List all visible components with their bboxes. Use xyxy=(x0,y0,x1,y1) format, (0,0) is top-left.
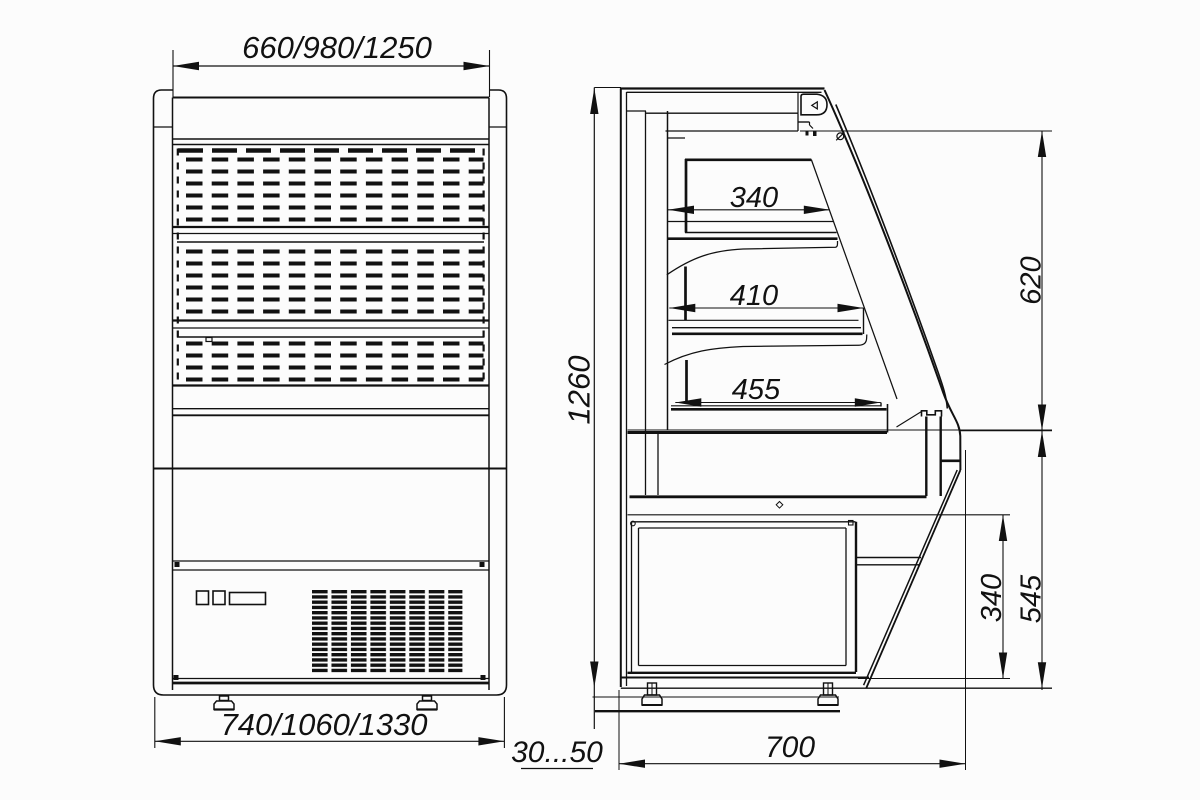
svg-text:340: 340 xyxy=(976,574,1008,622)
svg-text:545: 545 xyxy=(1015,574,1047,623)
svg-text:1260: 1260 xyxy=(562,356,597,425)
svg-text:660/980/1250: 660/980/1250 xyxy=(242,30,432,65)
svg-text:30...50: 30...50 xyxy=(511,736,603,769)
svg-text:455: 455 xyxy=(732,374,781,406)
svg-text:620: 620 xyxy=(1016,256,1048,304)
svg-text:740/1060/1330: 740/1060/1330 xyxy=(221,707,428,742)
svg-text:700: 700 xyxy=(765,731,815,764)
svg-text:340: 340 xyxy=(730,182,778,214)
svg-text:410: 410 xyxy=(730,280,778,312)
